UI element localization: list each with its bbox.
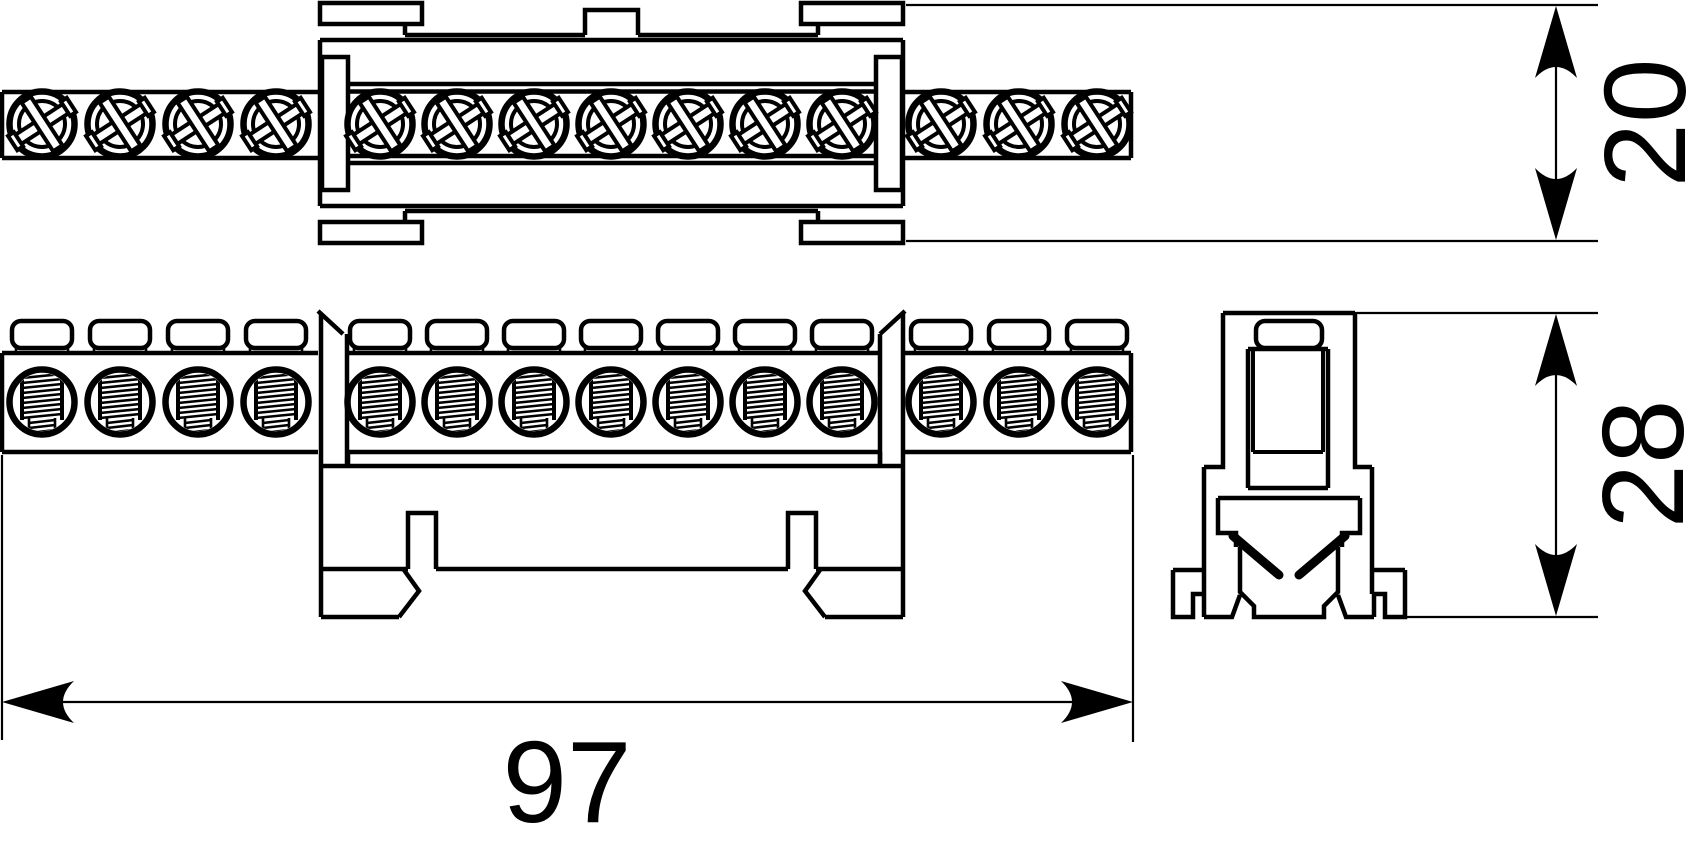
din-hook-left xyxy=(408,513,436,569)
terminal xyxy=(10,321,75,435)
mounting-tab xyxy=(405,10,818,35)
front-view-terminals xyxy=(10,321,1130,435)
terminal xyxy=(348,321,413,435)
terminal xyxy=(502,321,567,435)
dimension-width-97: 97 xyxy=(2,455,1133,847)
terminal xyxy=(1065,321,1130,435)
dimension-height-28: 28 xyxy=(1355,313,1706,617)
terminal xyxy=(810,321,875,435)
spring-clamp xyxy=(1233,536,1345,575)
terminal xyxy=(733,321,798,435)
top-view xyxy=(0,3,1142,243)
terminal xyxy=(166,321,231,435)
din-hook-right xyxy=(788,513,816,569)
terminal xyxy=(425,321,490,435)
technical-drawing-page: 20 28 97 xyxy=(0,0,1706,850)
dim-label-28: 28 xyxy=(1578,399,1706,528)
technical-drawing: 20 28 97 xyxy=(0,0,1706,850)
front-view xyxy=(2,311,1131,617)
clip-foot-right xyxy=(805,570,903,617)
terminal xyxy=(656,321,721,435)
side-foot-left xyxy=(1173,570,1204,617)
clip-foot-left xyxy=(321,570,419,617)
dim-label-97: 97 xyxy=(502,717,631,847)
side-view xyxy=(1173,313,1405,617)
terminal xyxy=(244,321,309,435)
terminal xyxy=(88,321,153,435)
terminal xyxy=(987,321,1052,435)
terminal xyxy=(579,321,644,435)
side-foot-right xyxy=(1372,570,1405,617)
terminal xyxy=(909,321,974,435)
dim-label-20: 20 xyxy=(1580,58,1706,187)
